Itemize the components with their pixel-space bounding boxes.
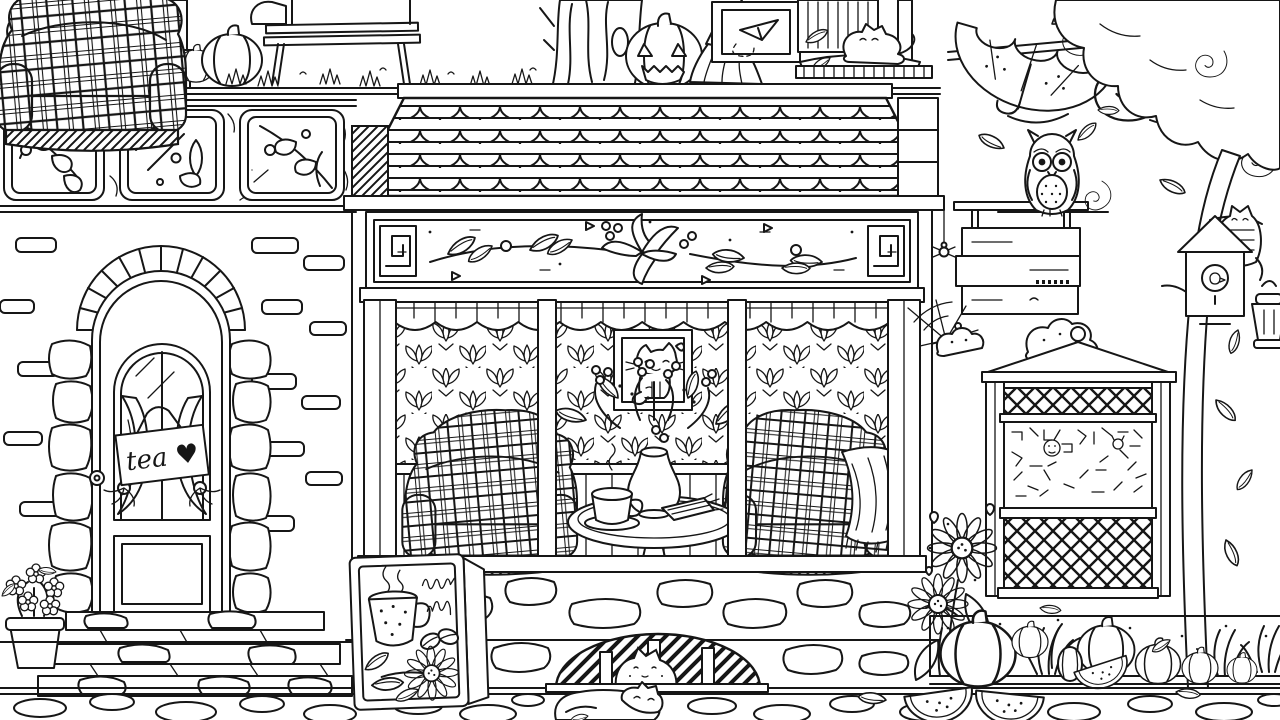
paper-plane-picture — [712, 2, 800, 62]
eaves-board — [344, 196, 944, 210]
plaid-armchair — [0, 0, 186, 151]
roof-ridge — [398, 84, 892, 98]
tile-window-3 — [240, 110, 344, 200]
scalloped-roof — [354, 98, 936, 196]
left-roof-block — [352, 126, 388, 196]
coloring-page: tea ♥ — [0, 0, 1280, 720]
doodle-panel — [1004, 422, 1152, 508]
arched-door: tea ♥ — [90, 271, 230, 624]
cat-on-bench — [251, 2, 286, 24]
stone-steps — [38, 611, 352, 696]
a-frame-signboard — [349, 553, 488, 710]
floral-frieze — [366, 212, 918, 290]
scene-canvas: tea ♥ — [0, 0, 1280, 720]
cat-sleeping-on-sill — [796, 0, 932, 78]
right-roof-block — [898, 98, 938, 196]
garden-kiosk — [982, 327, 1176, 598]
